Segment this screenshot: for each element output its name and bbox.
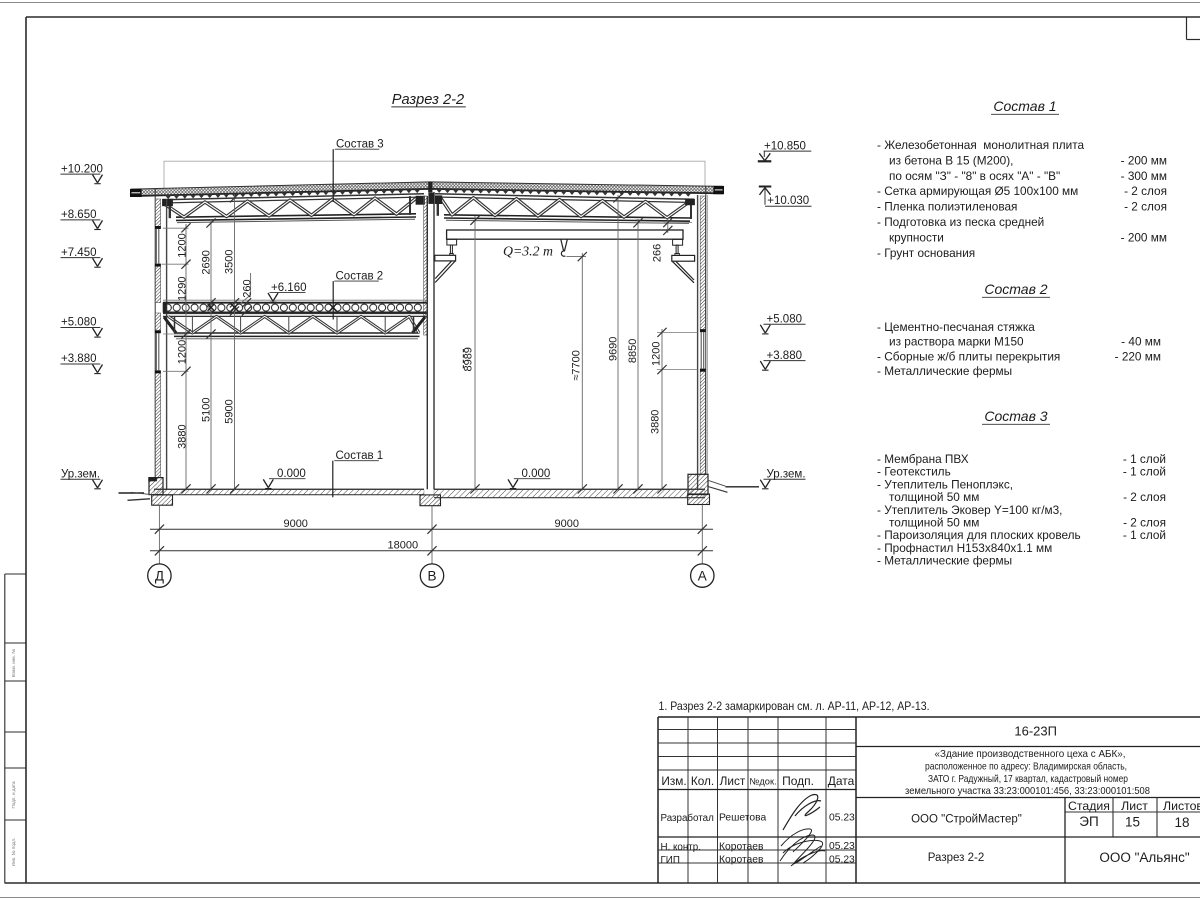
svg-text:5100: 5100: [200, 397, 212, 421]
svg-text:1200: 1200: [176, 233, 188, 257]
svg-text:Разрез 2-2: Разрез 2-2: [392, 92, 464, 108]
svg-text:≈7700: ≈7700: [570, 350, 582, 381]
svg-text:+5.080: +5.080: [767, 313, 803, 325]
svg-text:1. Разрез 2-2 замаркирован см.: 1. Разрез 2-2 замаркирован см. л. АР-11,…: [659, 700, 930, 713]
svg-text:+10.200: +10.200: [61, 163, 103, 175]
svg-text:- 2 слоя: - 2 слоя: [1124, 200, 1167, 214]
svg-text:9000: 9000: [283, 518, 307, 530]
svg-text:+6.160: +6.160: [271, 282, 307, 294]
svg-text:ГИП: ГИП: [661, 855, 680, 866]
svg-text:Состав 3: Состав 3: [984, 408, 1047, 424]
svg-text:№док.: №док.: [749, 776, 776, 786]
svg-text:Кол.: Кол.: [691, 774, 714, 788]
svg-text:+7.450: +7.450: [61, 247, 97, 259]
svg-text:2690: 2690: [200, 250, 212, 274]
svg-text:Коротаев: Коротаев: [719, 842, 764, 853]
svg-text:1200: 1200: [176, 340, 188, 364]
svg-text:+3.880: +3.880: [767, 350, 803, 362]
svg-text:- 220 мм: - 220 мм: [1115, 349, 1161, 363]
svg-text:- 200 мм: - 200 мм: [1121, 230, 1167, 244]
svg-text:- Сборные ж/б плиты перекрытия: - Сборные ж/б плиты перекрытия: [877, 349, 1060, 363]
svg-text:из бетона В 15 (М200),: из бетона В 15 (М200),: [889, 153, 1013, 167]
svg-text:Лист: Лист: [1121, 799, 1148, 813]
svg-text:Подп.: Подп.: [782, 774, 814, 788]
svg-text:Ур.зем.: Ур.зем.: [61, 468, 100, 480]
svg-text:Состав 1: Состав 1: [336, 450, 384, 462]
svg-text:из раствора марки М150: из раствора марки М150: [889, 335, 1024, 349]
svg-text:«Здание производственного цеха: «Здание производственного цеха с АБК»,: [935, 749, 1126, 760]
svg-text:+10.850: +10.850: [764, 140, 806, 152]
svg-text:- Металлические фермы: - Металлические фермы: [877, 554, 1012, 568]
svg-text:05.23: 05.23: [829, 813, 855, 824]
svg-text:- 300 мм: - 300 мм: [1121, 169, 1167, 183]
svg-text:- 2 слоя: - 2 слоя: [1123, 490, 1166, 504]
svg-text:0.000: 0.000: [522, 468, 551, 480]
svg-text:16-23П: 16-23П: [1014, 724, 1057, 739]
svg-text:Состав 1: Состав 1: [993, 98, 1056, 114]
svg-text:- 2 слоя: - 2 слоя: [1124, 184, 1167, 198]
svg-text:- 1 слой: - 1 слой: [1123, 465, 1166, 479]
svg-text:3500: 3500: [224, 249, 236, 273]
svg-text:9000: 9000: [555, 518, 579, 530]
svg-text:по осям "З" - "8" в осях "А" -: по осям "З" - "8" в осях "А" - "В": [889, 169, 1060, 183]
svg-text:- 40 мм: - 40 мм: [1121, 335, 1161, 349]
svg-text:Разработал: Разработал: [661, 813, 715, 824]
svg-text:Состав 2: Состав 2: [984, 281, 1047, 297]
svg-text:266: 266: [652, 244, 664, 262]
svg-text:Решетова: Решетова: [719, 813, 766, 824]
svg-text:Изм.: Изм.: [661, 774, 686, 788]
svg-text:Состав 2: Состав 2: [336, 270, 384, 282]
svg-text:1290: 1290: [176, 276, 188, 300]
svg-text:- Железобетонная монолитная п: - Железобетонная монолитная плита: [877, 138, 1085, 152]
svg-text:Лист: Лист: [720, 774, 746, 788]
svg-text:ЗАТО г. Радужный, 17 квартал,: ЗАТО г. Радужный, 17 квартал, кадастровы…: [928, 774, 1128, 785]
svg-text:Н. контр.: Н. контр.: [661, 842, 701, 853]
svg-text:ЭП: ЭП: [1079, 814, 1098, 829]
svg-text:1200: 1200: [650, 341, 662, 365]
svg-text:крупности: крупности: [889, 230, 944, 244]
svg-text:земельного участка 33:23:00010: земельного участка 33:23:000101:456, 33:…: [905, 786, 1150, 797]
svg-text:Разрез 2-2: Разрез 2-2: [928, 852, 984, 864]
svg-text:+8.650: +8.650: [61, 209, 97, 221]
svg-text:Взам. инв. №: Взам. инв. №: [11, 649, 16, 678]
svg-text:Q=3.2 т: Q=3.2 т: [503, 243, 553, 258]
svg-text:- Пленка полиэтиленовая: - Пленка полиэтиленовая: [877, 200, 1017, 214]
svg-text:- Подготовка из песка средней: - Подготовка из песка средней: [877, 215, 1044, 229]
svg-text:Подп. и дата: Подп. и дата: [11, 781, 16, 809]
svg-text:- Грунт основания: - Грунт основания: [877, 246, 975, 260]
svg-text:8850: 8850: [627, 339, 639, 363]
svg-text:- Сетка армирующая Ø5 100х100: - Сетка армирующая Ø5 100х100 мм: [877, 184, 1078, 198]
svg-text:05.23: 05.23: [829, 841, 855, 852]
svg-text:Коротаев: Коротаев: [719, 854, 764, 865]
svg-text:18: 18: [1174, 815, 1189, 830]
svg-text:15: 15: [1125, 814, 1140, 829]
svg-text:8989: 8989: [463, 347, 475, 371]
svg-text:Листов: Листов: [1163, 799, 1200, 813]
svg-text:3880: 3880: [176, 424, 188, 448]
svg-text:18000: 18000: [388, 540, 419, 552]
svg-text:+10.030: +10.030: [767, 195, 809, 207]
svg-text:Дата: Дата: [828, 774, 855, 788]
svg-text:Стадия: Стадия: [1068, 799, 1110, 813]
svg-text:Ур.зем.: Ур.зем.: [767, 468, 806, 480]
svg-text:05.23: 05.23: [829, 854, 855, 865]
svg-text:- Цементно-песчаная стяжка: - Цементно-песчаная стяжка: [877, 320, 1035, 334]
svg-text:5900: 5900: [224, 399, 236, 423]
svg-text:В: В: [427, 568, 436, 583]
svg-text:+5.080: +5.080: [61, 317, 97, 329]
svg-text:260: 260: [242, 279, 254, 297]
svg-text:Состав 3: Состав 3: [336, 138, 384, 150]
svg-text:- Металлические фермы: - Металлические фермы: [877, 364, 1012, 378]
svg-text:3880: 3880: [650, 410, 662, 434]
svg-text:- 1 слой: - 1 слой: [1123, 528, 1166, 542]
svg-text:9690: 9690: [607, 337, 619, 361]
svg-text:Инв. № подл.: Инв. № подл.: [11, 838, 16, 867]
svg-text:ООО "Альянс": ООО "Альянс": [1099, 850, 1189, 865]
svg-text:+3.880: +3.880: [61, 353, 97, 365]
svg-text:ООО "СтройМастер": ООО "СтройМастер": [911, 813, 1022, 825]
svg-text:Д: Д: [155, 568, 164, 583]
svg-text:0.000: 0.000: [277, 468, 306, 480]
svg-text:расположенное по адресу: Влади: расположенное по адресу: Владимирская об…: [925, 760, 1127, 772]
svg-text:А: А: [698, 568, 707, 583]
svg-text:- 200 мм: - 200 мм: [1121, 153, 1167, 167]
